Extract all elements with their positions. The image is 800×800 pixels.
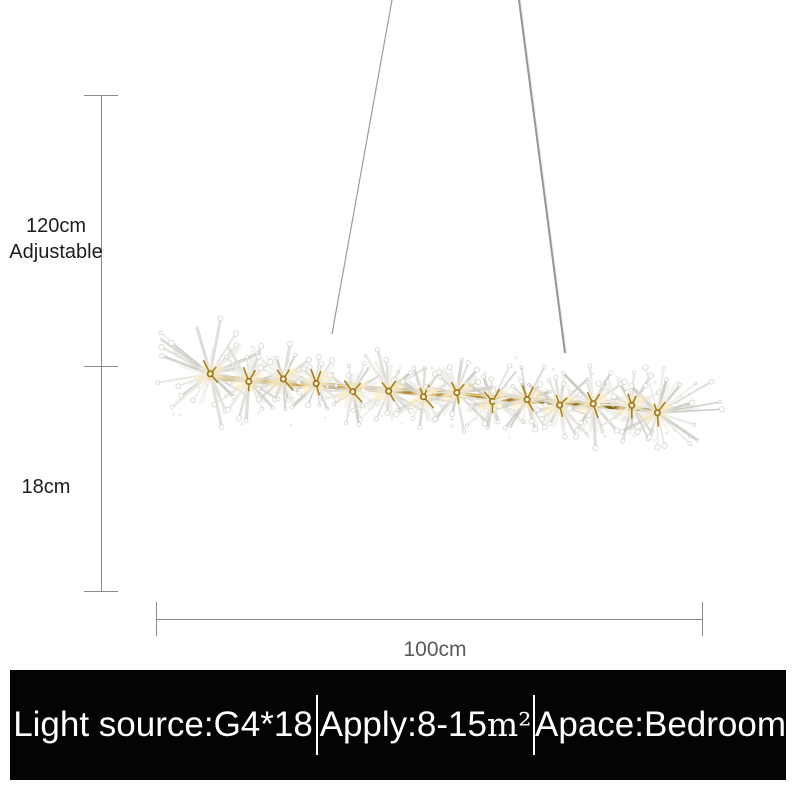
product-image: 120cm Adjustable 18cm 100cm Light source… bbox=[0, 0, 800, 800]
chandelier-body bbox=[156, 316, 725, 451]
suspension-wires bbox=[332, 0, 567, 353]
dimension-lines bbox=[84, 95, 703, 636]
spec-light-source: Light source:G4*18 bbox=[10, 705, 316, 745]
drop-height-value: 120cm bbox=[0, 213, 112, 239]
spec-bar: Light source:G4*18 Apply:8-15m² Apace:Be… bbox=[10, 670, 786, 780]
spec-space: Apace:Bedroom bbox=[535, 705, 786, 745]
drop-height-note: Adjustable bbox=[0, 239, 112, 265]
drop-height-label: 120cm Adjustable bbox=[0, 213, 112, 265]
body-width-label: 100cm bbox=[375, 637, 495, 663]
body-height-label: 18cm bbox=[0, 474, 92, 500]
spec-apply-area: Apply:8-15m² bbox=[318, 705, 533, 745]
